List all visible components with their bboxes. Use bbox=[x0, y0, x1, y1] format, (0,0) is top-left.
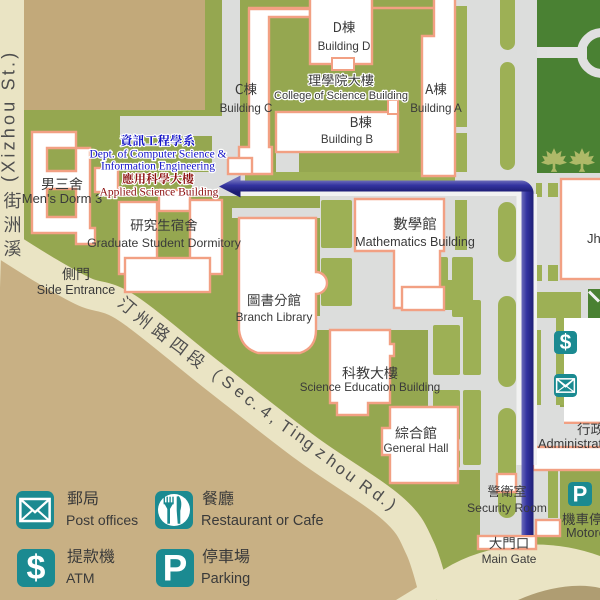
svg-text:Graduate Student Dormitory: Graduate Student Dormitory bbox=[87, 236, 242, 250]
svg-text:Post offices: Post offices bbox=[66, 512, 138, 528]
svg-text:P: P bbox=[163, 548, 188, 589]
svg-text:Building A: Building A bbox=[410, 102, 462, 115]
svg-text:ATM: ATM bbox=[66, 570, 95, 586]
svg-text:$: $ bbox=[560, 331, 572, 354]
svg-text:Applied Science Building: Applied Science Building bbox=[100, 187, 219, 199]
svg-text:(Xizhou St.): (Xizhou St.) bbox=[0, 50, 19, 182]
svg-text:General Hall: General Hall bbox=[384, 442, 449, 455]
svg-text:Building C: Building C bbox=[220, 102, 273, 115]
svg-text:College of Science Building: College of Science Building bbox=[274, 90, 408, 102]
svg-text:$: $ bbox=[27, 549, 46, 587]
svg-text:Motorcycle Parking: Motorcycle Parking bbox=[566, 525, 600, 540]
svg-text:Parking: Parking bbox=[201, 571, 250, 587]
svg-text:Security Room: Security Room bbox=[467, 501, 547, 515]
svg-text:Information Engineering: Information Engineering bbox=[101, 161, 215, 173]
svg-text:Jheng Bldg: Jheng Bldg bbox=[587, 231, 600, 246]
svg-text:Building B: Building B bbox=[321, 133, 373, 146]
svg-text:P: P bbox=[573, 482, 588, 507]
svg-text:Side Entrance: Side Entrance bbox=[37, 283, 116, 297]
svg-text:Restaurant or Cafe: Restaurant or Cafe bbox=[201, 513, 324, 529]
svg-text:Administrative Bldg: Administrative Bldg bbox=[538, 436, 600, 451]
svg-text:Science Education Building: Science Education Building bbox=[300, 381, 441, 394]
svg-text:Dept. of Computer Science &: Dept. of Computer Science & bbox=[89, 149, 226, 161]
svg-text:Main Gate: Main Gate bbox=[482, 552, 537, 566]
svg-text:Mathematics Building: Mathematics Building bbox=[355, 235, 475, 249]
svg-text:Building D: Building D bbox=[318, 40, 371, 53]
svg-text:Branch Library: Branch Library bbox=[236, 310, 313, 324]
svg-text:Men's Dorm 3: Men's Dorm 3 bbox=[22, 191, 103, 206]
